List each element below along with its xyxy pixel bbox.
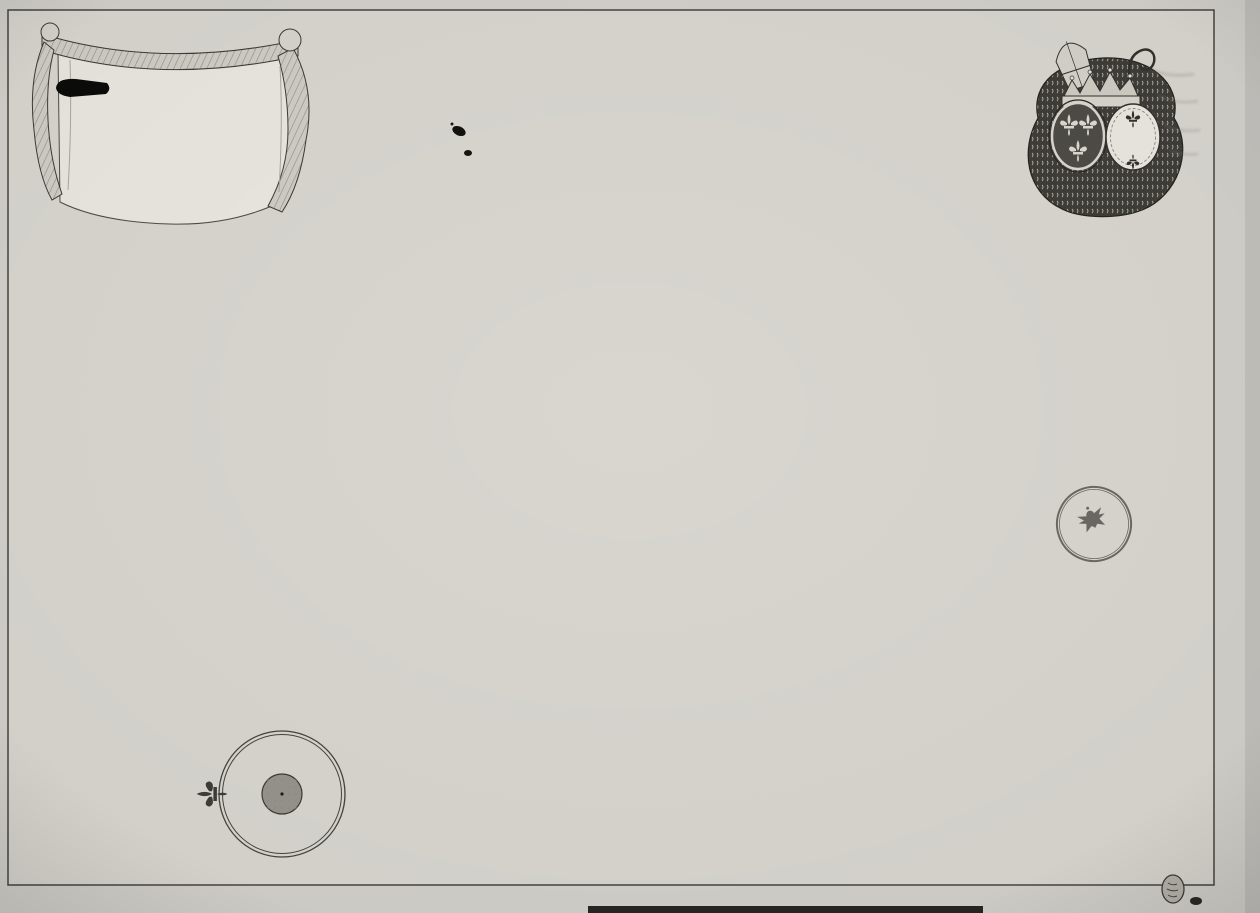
small-oval-stamp [1162,875,1184,903]
cartouche-panel [58,52,292,224]
photo-right-edge [1245,0,1260,913]
ink-spot [451,123,454,126]
engraving-plate [0,0,1260,913]
cartouche-knot-right [279,29,301,51]
legend-cartouche [58,68,294,71]
edge-mark [1190,897,1202,905]
photo-bottom-edge [588,906,983,913]
compass-center-dot [280,792,283,795]
cartouche-knot-left [41,23,59,41]
legend-cartouche-drape [32,23,309,224]
abbey-map-svg [0,0,1260,913]
ink-blot [464,150,472,156]
